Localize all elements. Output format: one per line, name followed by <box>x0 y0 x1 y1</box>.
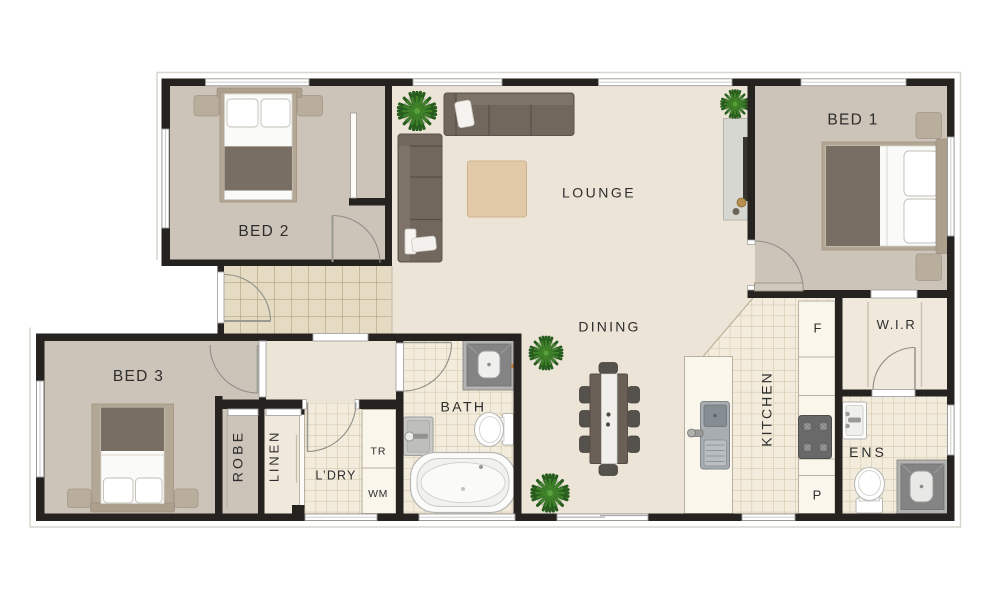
svg-text:ROBE: ROBE <box>230 430 246 482</box>
svg-text:ENS: ENS <box>849 444 887 460</box>
svg-text:P: P <box>813 488 822 503</box>
svg-text:W.I.R: W.I.R <box>877 317 917 332</box>
svg-text:F: F <box>814 321 822 336</box>
svg-text:DINING: DINING <box>578 319 640 335</box>
svg-text:L’DRY: L’DRY <box>315 469 356 483</box>
svg-text:BED 2: BED 2 <box>238 223 289 240</box>
svg-text:LINEN: LINEN <box>267 430 282 482</box>
svg-text:KITCHEN: KITCHEN <box>759 371 775 446</box>
svg-text:TR: TR <box>371 446 387 458</box>
svg-text:BATH: BATH <box>441 399 487 415</box>
svg-text:LOUNGE: LOUNGE <box>562 185 636 201</box>
svg-text:BED 3: BED 3 <box>113 368 164 385</box>
svg-text:WM: WM <box>368 488 388 500</box>
svg-text:BED 1: BED 1 <box>827 112 878 129</box>
